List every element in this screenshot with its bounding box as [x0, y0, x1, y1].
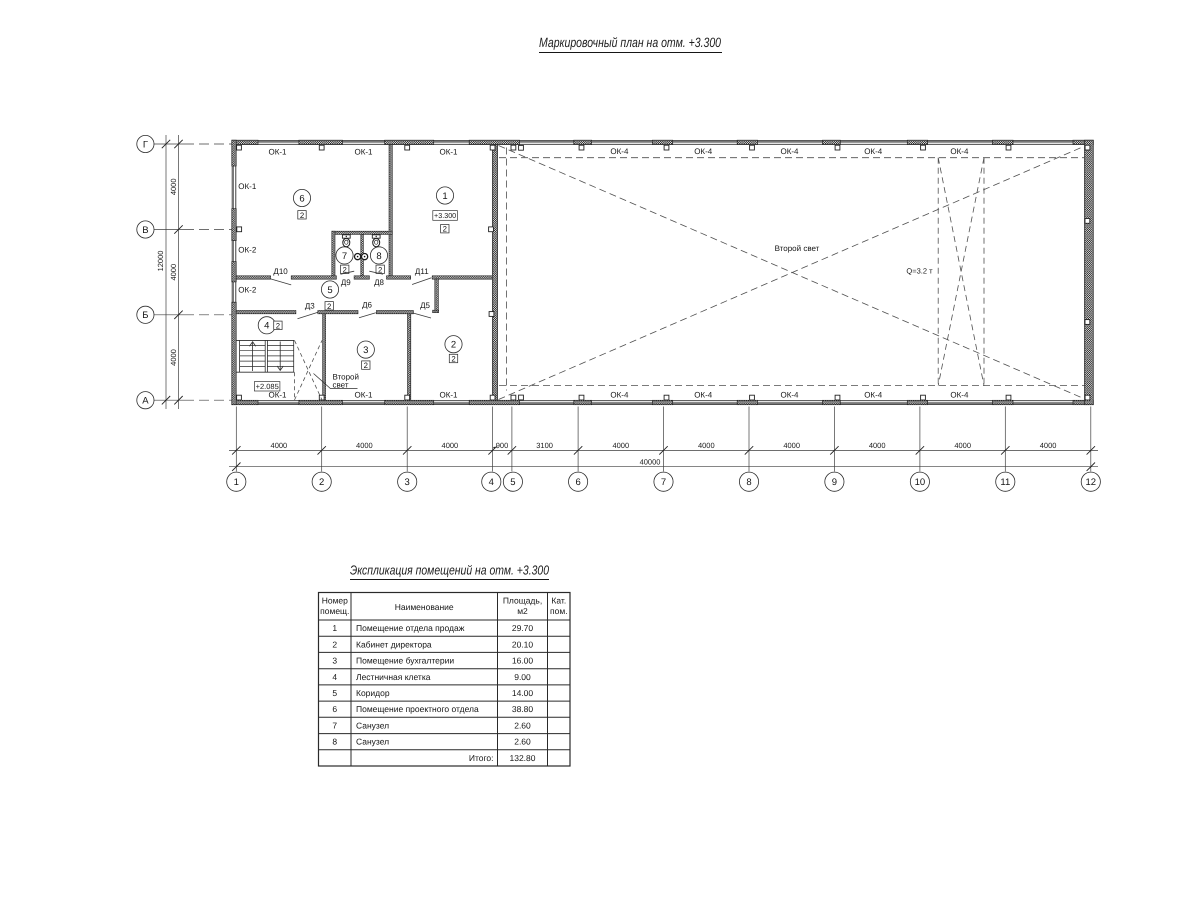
svg-text:4: 4	[264, 321, 269, 332]
svg-text:900: 900	[496, 441, 509, 450]
svg-text:4000: 4000	[442, 441, 459, 450]
svg-text:29.70: 29.70	[512, 623, 534, 633]
svg-text:ОК-4: ОК-4	[610, 390, 629, 399]
svg-text:Б: Б	[142, 310, 148, 321]
svg-text:38.80: 38.80	[512, 704, 534, 714]
svg-text:8: 8	[376, 251, 381, 262]
svg-text:4000: 4000	[869, 441, 886, 450]
svg-text:3: 3	[363, 345, 368, 356]
svg-text:2: 2	[332, 639, 337, 649]
svg-text:Д5: Д5	[420, 301, 430, 310]
svg-text:4000: 4000	[169, 178, 178, 195]
svg-text:9.00: 9.00	[514, 672, 531, 682]
svg-text:2.60: 2.60	[514, 737, 531, 747]
svg-text:Д10: Д10	[273, 267, 288, 276]
svg-text:1: 1	[234, 477, 239, 488]
svg-text:Д8: Д8	[374, 278, 384, 287]
svg-text:м2: м2	[517, 606, 528, 616]
svg-text:40000: 40000	[640, 458, 661, 467]
svg-text:ОК-1: ОК-1	[238, 182, 257, 191]
svg-text:ОК-4: ОК-4	[864, 390, 883, 399]
svg-text:свет: свет	[333, 380, 349, 389]
svg-text:6: 6	[332, 704, 337, 714]
svg-text:ОК-4: ОК-4	[694, 147, 713, 156]
svg-text:Г: Г	[143, 139, 148, 150]
svg-text:7: 7	[332, 721, 337, 731]
svg-text:9: 9	[832, 477, 837, 488]
svg-text:5: 5	[510, 477, 515, 488]
svg-text:4: 4	[489, 477, 494, 488]
svg-text:А: А	[142, 396, 149, 407]
svg-text:Д6: Д6	[362, 300, 372, 309]
svg-text:132.80: 132.80	[510, 753, 536, 763]
svg-text:8: 8	[332, 737, 337, 747]
svg-text:Q=3.2 т: Q=3.2 т	[906, 266, 933, 275]
svg-text:Помещение отдела продаж: Помещение отдела продаж	[356, 623, 465, 633]
svg-text:пом.: пом.	[550, 606, 568, 616]
svg-text:20.10: 20.10	[512, 639, 534, 649]
svg-text:В: В	[142, 225, 148, 236]
svg-text:4000: 4000	[271, 441, 288, 450]
svg-text:ОК-1: ОК-1	[269, 390, 288, 399]
svg-text:ОК-4: ОК-4	[950, 390, 969, 399]
svg-text:2: 2	[319, 477, 324, 488]
svg-text:1: 1	[332, 623, 337, 633]
svg-text:ОК-4: ОК-4	[694, 390, 713, 399]
svg-text:ОК-4: ОК-4	[781, 147, 800, 156]
svg-text:3: 3	[405, 477, 410, 488]
svg-text:Номер: Номер	[322, 596, 348, 606]
svg-text:16.00: 16.00	[512, 656, 534, 666]
svg-text:11: 11	[1000, 477, 1010, 488]
svg-text:7: 7	[342, 251, 347, 262]
svg-text:Итого:: Итого:	[469, 753, 494, 763]
svg-text:Второй свет: Второй свет	[775, 244, 820, 253]
svg-text:10: 10	[915, 477, 926, 488]
svg-text:Д11: Д11	[415, 267, 429, 276]
svg-text:Д9: Д9	[341, 278, 351, 287]
svg-text:ОК-4: ОК-4	[610, 147, 629, 156]
svg-text:+3.300: +3.300	[434, 211, 456, 220]
svg-text:2.60: 2.60	[514, 721, 531, 731]
svg-text:4000: 4000	[698, 441, 715, 450]
svg-text:Д3: Д3	[305, 302, 315, 311]
svg-text:Лестничная клетка: Лестничная клетка	[356, 672, 431, 682]
svg-text:Кабинет директора: Кабинет директора	[356, 639, 432, 649]
svg-text:Санузел: Санузел	[356, 721, 389, 731]
svg-text:Коридор: Коридор	[356, 688, 390, 698]
svg-text:2: 2	[300, 211, 304, 220]
svg-text:12000: 12000	[156, 251, 165, 272]
svg-text:Площадь,: Площадь,	[503, 596, 542, 606]
svg-text:7: 7	[661, 477, 666, 488]
svg-text:4000: 4000	[1040, 441, 1057, 450]
svg-text:4000: 4000	[954, 441, 971, 450]
svg-text:Наименование: Наименование	[395, 602, 454, 612]
svg-text:ОК-4: ОК-4	[781, 390, 800, 399]
svg-text:5: 5	[327, 285, 332, 296]
svg-text:4000: 4000	[612, 441, 629, 450]
svg-text:2: 2	[327, 302, 331, 311]
svg-text:4000: 4000	[169, 264, 178, 281]
svg-text:Экспликация помещений на отм.: Экспликация помещений на отм. +3.300	[350, 563, 550, 578]
svg-text:1: 1	[442, 191, 447, 202]
svg-text:4000: 4000	[169, 349, 178, 366]
svg-text:+2.085: +2.085	[256, 382, 279, 391]
svg-text:ОК-1: ОК-1	[440, 390, 459, 399]
svg-text:помещ.: помещ.	[320, 606, 349, 616]
svg-text:3: 3	[332, 656, 337, 666]
svg-text:2: 2	[443, 225, 447, 234]
svg-text:14.00: 14.00	[512, 688, 534, 698]
svg-text:Помещение проектного отдела: Помещение проектного отдела	[356, 704, 479, 714]
svg-text:2: 2	[451, 355, 455, 364]
svg-text:Помещение бухгалтерии: Помещение бухгалтерии	[356, 656, 454, 666]
svg-text:3100: 3100	[536, 441, 553, 450]
svg-text:ОК-4: ОК-4	[864, 147, 883, 156]
svg-text:ОК-1: ОК-1	[440, 148, 459, 157]
svg-text:Кат.: Кат.	[551, 596, 566, 606]
svg-text:2: 2	[276, 321, 280, 330]
svg-text:12: 12	[1086, 477, 1097, 488]
svg-text:ОК-2: ОК-2	[238, 286, 257, 295]
svg-text:6: 6	[299, 193, 304, 204]
svg-text:ОК-4: ОК-4	[950, 147, 969, 156]
svg-text:Санузел: Санузел	[356, 737, 389, 747]
svg-text:8: 8	[746, 477, 751, 488]
svg-text:2: 2	[451, 340, 456, 351]
svg-text:5: 5	[332, 688, 337, 698]
svg-text:ОК-2: ОК-2	[238, 246, 257, 255]
svg-text:ОК-1: ОК-1	[355, 390, 374, 399]
svg-text:ОК-1: ОК-1	[355, 148, 374, 157]
svg-text:ОК-1: ОК-1	[269, 148, 288, 157]
svg-text:Маркировочный план на отм. +3.: Маркировочный план на отм. +3.300	[539, 35, 721, 50]
svg-text:4000: 4000	[356, 441, 373, 450]
svg-text:2: 2	[364, 361, 368, 370]
svg-text:6: 6	[575, 477, 580, 488]
svg-text:4: 4	[332, 672, 337, 682]
svg-text:4000: 4000	[783, 441, 800, 450]
